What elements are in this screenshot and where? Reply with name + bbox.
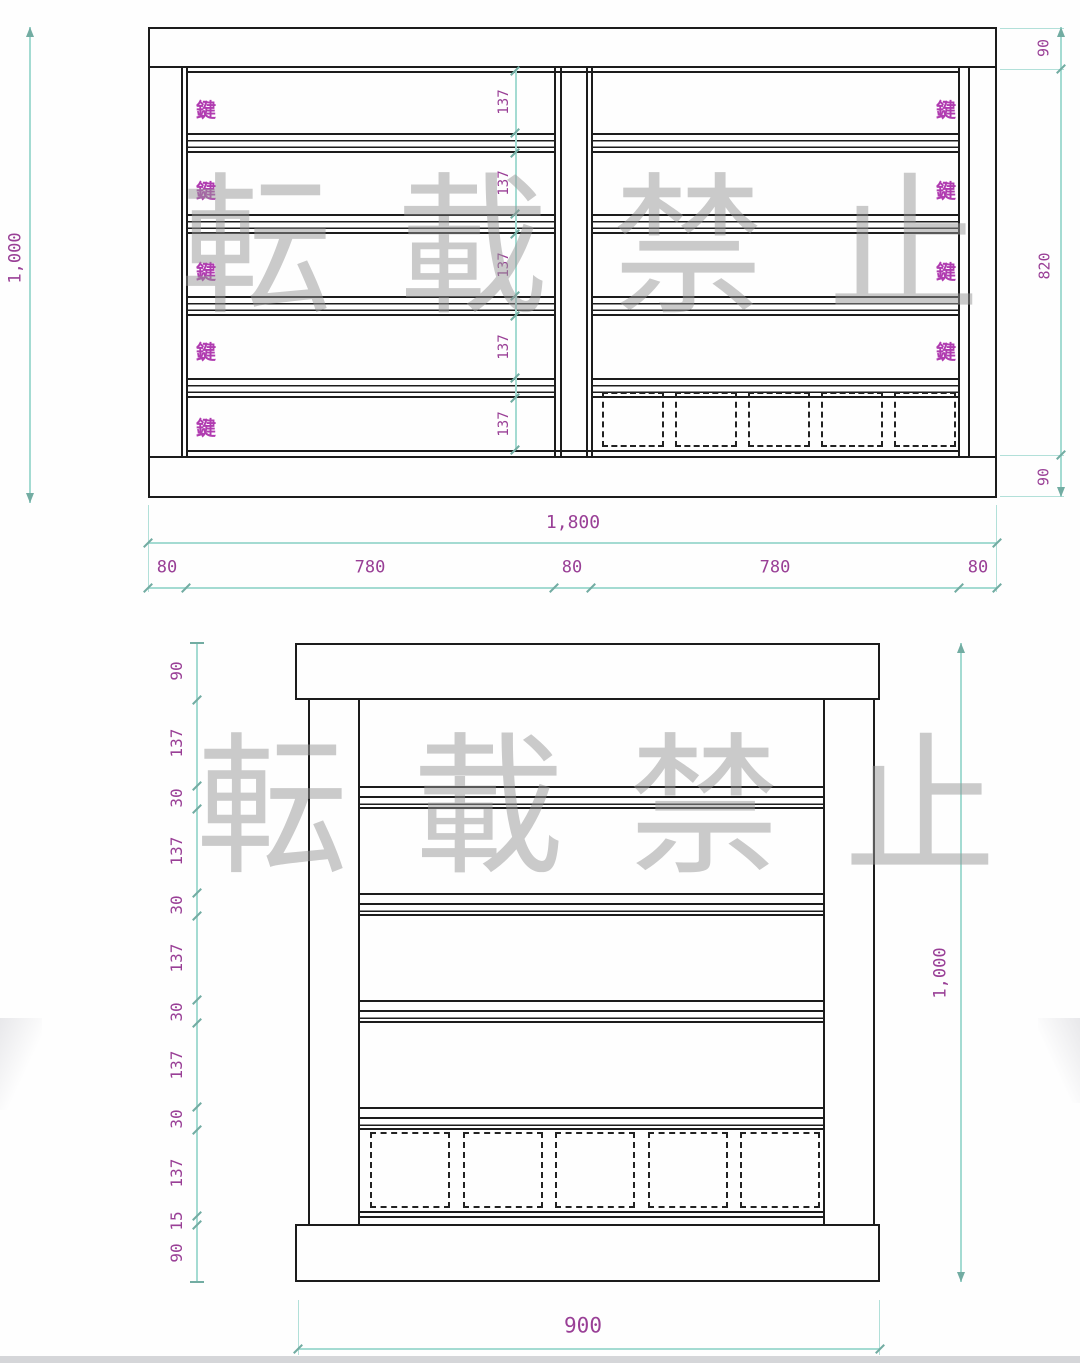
interior-top-line: [187, 71, 958, 73]
dim-label-chain: 30: [169, 1002, 185, 1021]
shelf-band: [591, 133, 958, 153]
dim-line-width-segments: [148, 587, 997, 589]
dim-label-chain: 15: [169, 1211, 185, 1230]
dim-line-width-total: [298, 1348, 880, 1350]
shelf-band: [187, 133, 554, 153]
dim-label-segment: 80: [968, 560, 988, 577]
right-stile-outer-line: [873, 700, 875, 1224]
dim-label-right: 820: [1038, 252, 1053, 279]
shelf-band: [591, 214, 958, 234]
dim-arrow: [957, 1272, 965, 1282]
dim-label-chain: 30: [169, 1109, 185, 1128]
dim-line-shelf-chain: [515, 71, 517, 450]
dim-line-left-chain: [196, 643, 198, 1282]
dim-label-chain: 137: [169, 1051, 185, 1080]
top-rail: [295, 643, 880, 700]
dim-extension-line: [1000, 455, 1064, 456]
interior-bottom-line: [360, 1216, 823, 1218]
key-label: 鍵: [196, 100, 216, 120]
shelf-band: [591, 296, 958, 316]
drawer-row: [602, 392, 956, 449]
blueprint-canvas: 鍵 鍵 鍵 鍵 鍵 鍵 鍵 鍵 鍵 137 137 137 137 137 1,…: [0, 0, 1080, 1363]
left-wall-line: [186, 66, 188, 458]
scan-smudge-right: [1038, 1018, 1080, 1103]
key-label: 鍵: [196, 181, 216, 201]
left-stile-inner-line: [358, 700, 360, 1224]
key-label: 鍵: [936, 342, 956, 362]
drawer-dashed-box: [748, 392, 810, 447]
drawer-row: [370, 1132, 820, 1210]
drawer-dashed-box: [894, 392, 956, 447]
dim-extension-line: [1000, 69, 1064, 70]
dim-label-segment: 80: [562, 560, 582, 577]
center-divider-line: [560, 66, 562, 458]
dim-label-right: 90: [1037, 39, 1052, 57]
shelf-band: [187, 214, 554, 234]
left-wall-line: [181, 66, 183, 458]
dim-label-segment: 80: [157, 560, 177, 577]
right-stile-inner-line: [823, 700, 825, 1224]
drawer-dashed-box: [463, 1132, 543, 1208]
shelf-band: [187, 296, 554, 316]
drawer-dashed-box: [821, 392, 883, 447]
key-label: 鍵: [196, 418, 216, 438]
drawer-dashed-box: [602, 392, 664, 447]
dim-label-shelf: 137: [497, 334, 511, 359]
base-rail-top-line: [148, 456, 997, 458]
key-label: 鍵: [936, 181, 956, 201]
dim-label-shelf: 137: [497, 411, 511, 436]
dim-label-chain: 137: [169, 837, 185, 866]
dim-label-segment: 780: [355, 560, 386, 577]
dim-label-chain: 90: [169, 661, 185, 680]
shelf-band: [360, 893, 823, 916]
base-rail: [295, 1224, 880, 1282]
dim-label-chain: 137: [169, 1159, 185, 1188]
dim-arrow: [26, 27, 34, 37]
dim-extension-line: [996, 505, 997, 592]
dim-label-chain: 30: [169, 895, 185, 914]
dim-line-height: [960, 643, 962, 1282]
drawer-dashed-box: [648, 1132, 728, 1208]
dim-label-right: 90: [1037, 468, 1052, 486]
dim-line-width-total: [148, 542, 997, 544]
center-divider-line: [554, 66, 556, 458]
dim-extension-line: [148, 505, 149, 592]
dim-label-chain: 137: [169, 944, 185, 973]
key-label: 鍵: [936, 100, 956, 120]
shelf-band: [187, 378, 554, 398]
dim-arrow: [26, 493, 34, 503]
dim-endbar: [190, 642, 204, 644]
left-stile-outer-line: [308, 700, 310, 1224]
center-divider-line: [591, 66, 593, 458]
dim-arrow: [957, 643, 965, 653]
dim-endbar: [190, 1281, 204, 1283]
scan-edge-strip: [0, 1356, 1080, 1363]
dim-extension-line: [1000, 496, 1064, 497]
top-rail-bottom-line: [148, 66, 997, 68]
key-label: 鍵: [196, 262, 216, 282]
dim-label-height-total: 1,000: [933, 947, 950, 998]
interior-bottom-line: [360, 1211, 823, 1213]
dim-label-shelf: 137: [497, 170, 511, 195]
dim-label-width-total: 900: [564, 1316, 602, 1337]
drawer-dashed-box: [555, 1132, 635, 1208]
dim-label-shelf: 137: [497, 89, 511, 114]
shelf-band: [360, 1107, 823, 1130]
key-label: 鍵: [196, 342, 216, 362]
right-wall-line: [968, 66, 970, 458]
shelf-band: [360, 1000, 823, 1023]
dim-line-height: [29, 27, 31, 503]
right-wall-line: [958, 66, 960, 458]
drawer-dashed-box: [740, 1132, 820, 1208]
dim-label-shelf: 137: [497, 252, 511, 277]
dim-arrow: [1057, 487, 1065, 497]
scan-smudge-left: [0, 1018, 42, 1110]
dim-extension-line: [1000, 28, 1064, 29]
center-divider-line: [586, 66, 588, 458]
drawer-dashed-box: [675, 392, 737, 447]
key-label: 鍵: [936, 262, 956, 282]
shelf-band: [360, 786, 823, 809]
dim-line-right-chain: [1060, 27, 1062, 497]
dim-label-chain: 137: [169, 729, 185, 758]
dim-label-segment: 780: [760, 560, 791, 577]
dim-label-chain: 30: [169, 788, 185, 807]
interior-bottom-line: [187, 450, 958, 452]
dim-label-height-total: 1,000: [8, 232, 25, 283]
dim-arrow: [1057, 27, 1065, 37]
dim-label-width-total: 1,800: [546, 514, 600, 532]
dim-label-chain: 90: [169, 1243, 185, 1262]
drawer-dashed-box: [370, 1132, 450, 1208]
